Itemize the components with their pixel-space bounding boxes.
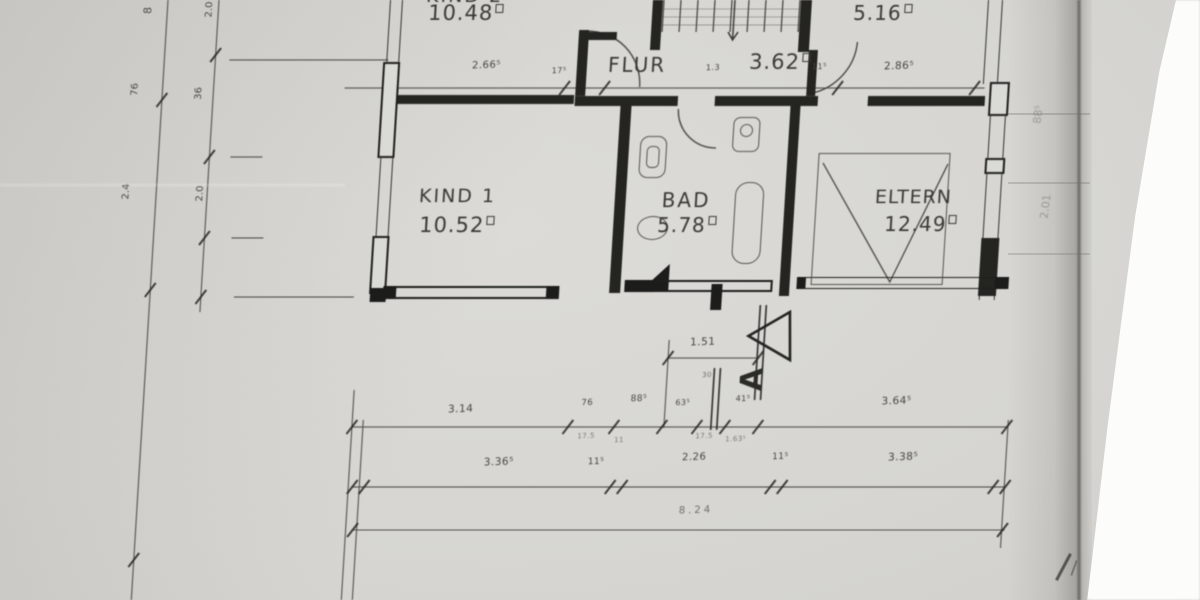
dim-r1s-2: 11	[614, 436, 624, 444]
room-label-flur: FLUR	[607, 53, 667, 77]
dim-r1-1: 3.14	[448, 403, 474, 416]
area-value: 12.49	[884, 212, 948, 236]
dim-r2-3: 2.26	[682, 452, 707, 464]
plan-linework	[0, 0, 1200, 600]
room-label-kind1: KIND 1	[418, 185, 496, 207]
room-area-flur: 3.62	[748, 50, 810, 74]
dim-left-inner-3: 2.0	[194, 186, 206, 202]
dim-r1-4: 63⁵	[675, 398, 690, 408]
dim-left-inner-2: 36	[193, 87, 205, 100]
square-meter-symbol	[495, 4, 504, 13]
wall-kind1-bottom	[383, 286, 560, 299]
floorplan-drawing: KIND 2 10.48 FLUR 3.62 5.16 KIND 1 10.52…	[0, 0, 1200, 600]
wall-cap-c	[624, 280, 655, 292]
dim-151: 1.51	[690, 336, 716, 349]
section-letter: A	[734, 368, 770, 391]
dim-r1s-4: 1.63⁵	[725, 435, 746, 444]
square-meter-symbol	[708, 216, 717, 225]
room-area-kind1: 10.52	[419, 213, 496, 237]
pencil-note-1: 88⁵	[1031, 105, 1046, 124]
room-label-bad: BAD	[661, 188, 711, 212]
room-label-eltern: ELTERN	[874, 186, 952, 208]
dim-r2-1: 3.36⁵	[484, 455, 514, 468]
room-area-bad: 5.78	[657, 213, 717, 237]
area-value: 3.62	[748, 50, 800, 74]
dim-r1-6: 3.64⁵	[881, 394, 911, 407]
area-value: 10.48	[427, 1, 494, 25]
dimension-ticks	[128, 48, 1037, 567]
wall-flur-bottom-c	[868, 96, 986, 106]
dim-r1-2: 76	[581, 398, 593, 408]
window-right-small	[984, 158, 1005, 174]
dim-interior-2: 17⁵	[552, 66, 567, 76]
square-meter-symbol	[949, 215, 958, 224]
square-meter-symbol	[802, 53, 811, 62]
dim-left-outer-2: 76	[129, 83, 141, 96]
wall-flur-top-stub	[579, 32, 617, 40]
dim-interior-1: 2.66⁵	[472, 60, 501, 72]
stair-walkline	[728, 0, 740, 40]
dim-r2-4: 11⁵	[772, 452, 789, 463]
section-line-stub	[710, 284, 723, 310]
area-value: 10.52	[419, 213, 486, 237]
dim-total: 8.24	[679, 504, 714, 516]
area-value: 5.78	[657, 213, 707, 237]
wall-cap-d	[796, 277, 806, 289]
area-value: 5.16	[852, 1, 902, 25]
square-meter-symbol	[904, 4, 913, 13]
wall-cap-e	[994, 277, 1009, 289]
toilet-bowl	[646, 146, 660, 168]
square-meter-symbol	[486, 216, 495, 225]
section-marker-triangle	[747, 312, 793, 360]
dim-left-outer-3: 2.4	[120, 184, 132, 200]
room-area-eltern: 12.49	[884, 212, 958, 236]
dim-r1-3: 88⁵	[630, 394, 647, 405]
bathtub	[731, 182, 765, 264]
window-right-upper	[988, 82, 1010, 116]
stair-treads	[662, 0, 800, 32]
wall-flur-bottom-b	[715, 96, 819, 106]
wall-cap-a	[383, 286, 397, 299]
room-area-store: 5.16	[852, 1, 912, 25]
dim-r1-5: 41⁵	[735, 394, 750, 404]
dim-151-sub: 30	[702, 371, 712, 379]
dim-interior-4: 11⁵	[812, 62, 827, 72]
room-area-kind2: 10.48	[427, 1, 504, 25]
floorplan-photo: KIND 2 10.48 FLUR 3.62 5.16 KIND 1 10.52…	[0, 0, 1200, 600]
wall-kind2-kind1	[398, 95, 575, 104]
dim-interior-3: 1.3	[706, 63, 720, 72]
dim-interior-5: 2.86⁵	[884, 59, 914, 72]
dim-left-outer-1: 8	[141, 7, 154, 14]
wall-cap-b	[546, 286, 560, 299]
dim-r2-2: 11⁵	[588, 457, 605, 468]
dim-r1s-3: 17.5	[695, 432, 713, 441]
dim-left-inner-1: 2.0	[203, 2, 215, 18]
dim-r2-5: 3.38⁵	[888, 450, 918, 463]
dim-r1s-1: 17.5	[577, 432, 595, 441]
